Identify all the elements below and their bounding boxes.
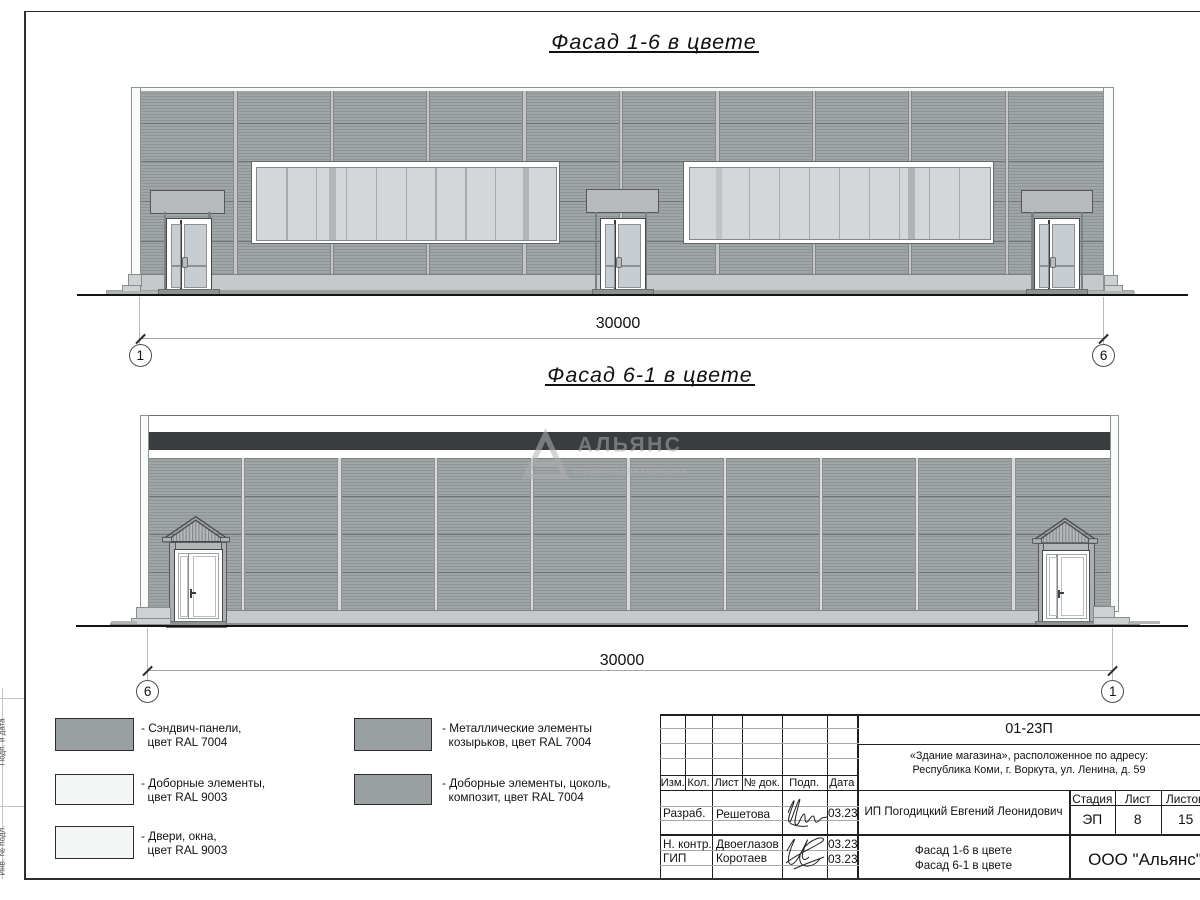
svg-text:строительная компания: строительная компания [573, 466, 686, 476]
svg-text:АЛЬЯНС: АЛЬЯНС [578, 434, 683, 457]
